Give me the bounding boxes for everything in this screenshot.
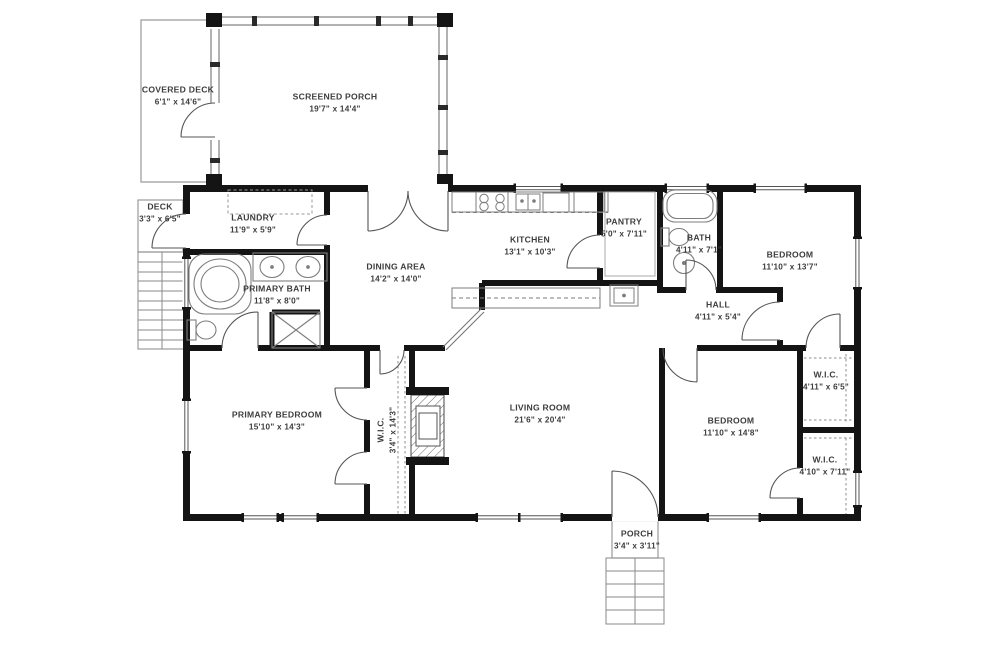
room-label-pantry: PANTRY 5'0" x 7'11" — [601, 215, 647, 240]
room-name: PRIMARY BEDROOM — [232, 408, 322, 421]
room-label-dining-area: DINING AREA 14'2" x 14'0" — [366, 260, 425, 285]
room-name: BEDROOM — [762, 248, 818, 261]
bathtub — [663, 190, 717, 222]
room-dims: 4'11" x 7'1" — [676, 244, 722, 256]
room-dims: 19'7" x 14'4" — [293, 103, 378, 115]
room-name: PANTRY — [601, 215, 647, 228]
room-name: W.I.C. — [800, 453, 851, 466]
room-label-wic-center: W.I.C. 3'4" x 14'3" — [374, 407, 399, 454]
primary-closet-door-lower — [335, 452, 367, 484]
room-name: SCREENED PORCH — [293, 90, 378, 103]
room-name: W.I.C. — [803, 368, 849, 381]
room-dims: 21'6" x 20'4" — [510, 414, 571, 426]
room-name: KITCHEN — [504, 233, 555, 246]
shower — [272, 312, 320, 348]
room-label-laundry: LAUNDRY 11'9" x 5'9" — [230, 211, 276, 236]
room-name: W.I.C. — [374, 407, 387, 454]
fireplace — [406, 387, 449, 465]
room-dims: 3'4" x 14'3" — [387, 407, 399, 454]
room-dims: 5'0" x 7'11" — [601, 228, 647, 240]
room-label-bath: BATH 4'11" x 7'1" — [676, 231, 722, 256]
room-dims: 3'3" x 6'5" — [139, 213, 181, 225]
room-name: BEDROOM — [703, 414, 759, 427]
kitchen-sink — [516, 194, 540, 210]
dishwasher — [543, 193, 569, 212]
room-dims: 3'4" x 3'11" — [614, 540, 660, 552]
utility-sink-cabinet — [610, 285, 638, 306]
room-label-bedroom-top-right: BEDROOM 11'10" x 13'7" — [762, 248, 818, 273]
room-label-bedroom-bottom-right: BEDROOM 11'10" x 14'8" — [703, 414, 759, 439]
front-porch-door — [612, 471, 658, 517]
stairs-front — [606, 558, 664, 624]
room-name: DINING AREA — [366, 260, 425, 273]
room-label-porch: PORCH 3'4" x 3'11" — [614, 527, 660, 552]
room-name: COVERED DECK — [142, 83, 214, 96]
room-name: BATH — [676, 231, 722, 244]
primary-bath-door — [222, 312, 258, 348]
room-label-living-room: LIVING ROOM 21'6" x 20'4" — [510, 401, 571, 426]
room-name: PORCH — [614, 527, 660, 540]
room-dims: 11'10" x 14'8" — [703, 427, 759, 439]
room-label-wic-lower-right: W.I.C. 4'10" x 7'11" — [800, 453, 851, 478]
primary-closet-door-upper — [335, 388, 367, 420]
pantry-door — [567, 235, 600, 268]
washer-dryer-area — [228, 190, 312, 214]
bedroom-br-door — [663, 348, 697, 382]
room-label-deck: DECK 3'3" x 6'5" — [139, 200, 181, 225]
hall-bath-door — [686, 260, 716, 290]
room-name: HALL — [695, 298, 741, 311]
wic-upper-door — [806, 314, 840, 348]
room-dims: 4'11" x 6'5" — [803, 381, 849, 393]
room-label-primary-bath: PRIMARY BATH 11'8" x 8'0" — [243, 282, 311, 307]
room-name: DECK — [139, 200, 181, 213]
dining-french-doors — [368, 191, 448, 231]
closet-rods — [398, 354, 854, 514]
floor-plan-image: COVERED DECK 6'1" x 14'6" SCREENED PORCH… — [0, 0, 1000, 656]
room-name: LIVING ROOM — [510, 401, 571, 414]
room-label-screened-porch: SCREENED PORCH 19'7" x 14'4" — [293, 90, 378, 115]
corner-tub — [189, 254, 251, 314]
laundry-door — [297, 215, 327, 245]
room-dims: 6'1" x 14'6" — [142, 96, 214, 108]
room-dims: 11'9" x 5'9" — [230, 224, 276, 236]
room-label-kitchen: KITCHEN 13'1" x 10'3" — [504, 233, 555, 258]
dining-living-arch — [443, 309, 484, 350]
room-dims: 13'1" x 10'3" — [504, 246, 555, 258]
double-vanity — [253, 253, 327, 281]
room-dims: 15'10" x 14'3" — [232, 421, 322, 433]
room-name: LAUNDRY — [230, 211, 276, 224]
room-dims: 4'11" x 5'4" — [695, 311, 741, 323]
room-label-primary-bedroom: PRIMARY BEDROOM 15'10" x 14'3" — [232, 408, 322, 433]
wic-center-door — [380, 350, 404, 374]
room-name: PRIMARY BATH — [243, 282, 311, 295]
room-dims: 4'10" x 7'11" — [800, 466, 851, 478]
room-dims: 14'2" x 14'0" — [366, 273, 425, 285]
room-dims: 11'8" x 8'0" — [243, 295, 311, 307]
wic-lower-door — [770, 468, 800, 498]
room-label-hall: HALL 4'11" x 5'4" — [695, 298, 741, 323]
room-label-covered-deck: COVERED DECK 6'1" x 14'6" — [142, 83, 214, 108]
toilet — [187, 320, 216, 340]
room-label-wic-upper-right: W.I.C. 4'11" x 6'5" — [803, 368, 849, 393]
bedroom-tr-door — [742, 302, 780, 340]
stairs-left — [138, 252, 185, 349]
room-dims: 11'10" x 13'7" — [762, 261, 818, 273]
